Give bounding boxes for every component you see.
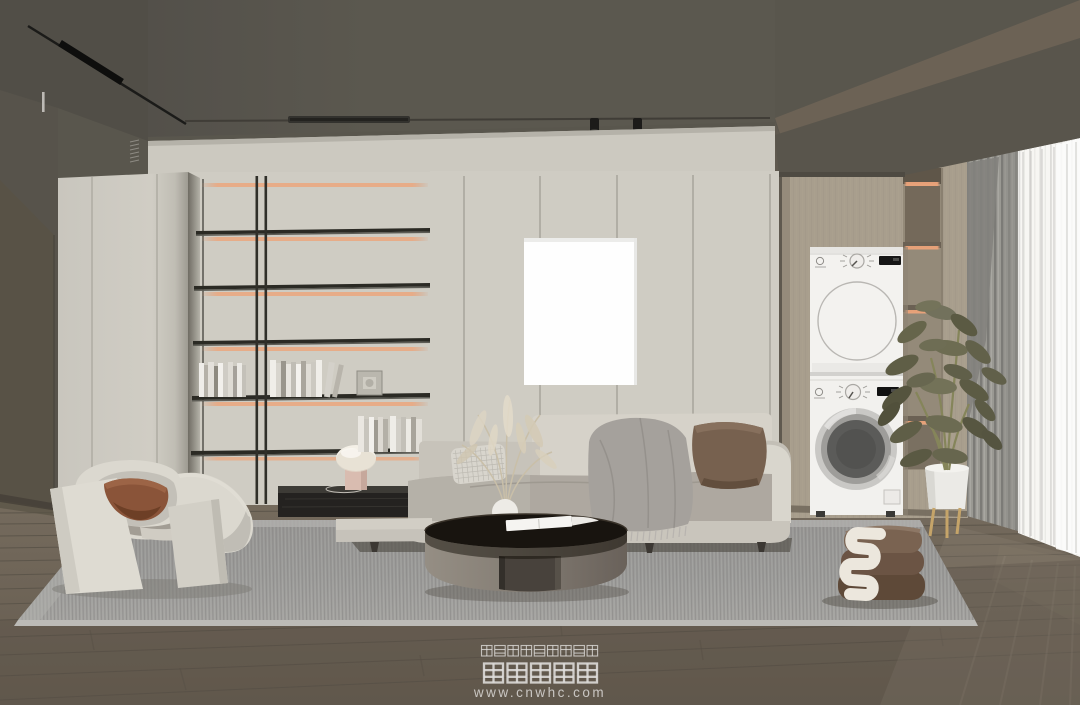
svg-text:www.cnwhc.com: www.cnwhc.com — [473, 685, 606, 700]
